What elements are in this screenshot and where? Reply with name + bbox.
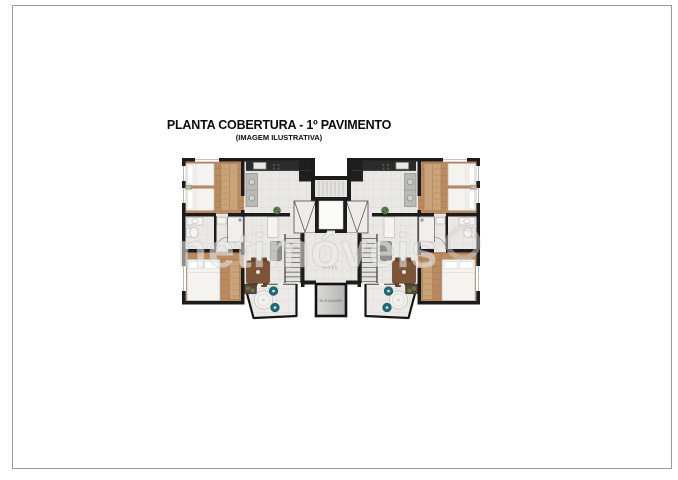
laundry-appliances — [246, 174, 258, 207]
elevator-label: ELEVADOR — [319, 299, 342, 303]
kitchen-sink — [254, 163, 267, 170]
watermark-text: netimóveis — [178, 225, 439, 278]
watermark: netimóveis — [178, 225, 478, 278]
lamp — [187, 186, 190, 189]
listing-floor-plan-image: PLANTA COBERTURA - 1º PAVIMENTO (IMAGEM … — [0, 0, 678, 480]
fridge — [299, 161, 311, 182]
bathroom-sink — [217, 218, 226, 225]
service-shaft — [315, 180, 347, 197]
elevator-label-box: ELEVADOR — [316, 284, 346, 316]
plant — [273, 207, 280, 214]
wardrobe-top — [221, 164, 238, 211]
planter — [245, 285, 257, 294]
floor-plan-drawing: HALL ELEVADOR netimóveis — [0, 0, 678, 480]
